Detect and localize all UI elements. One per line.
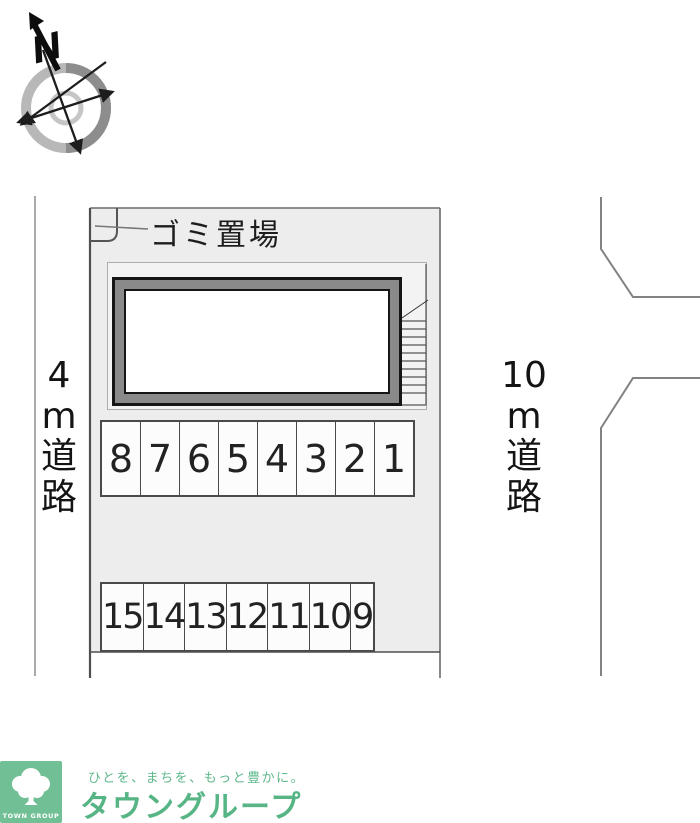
- road-4m-line: 道: [38, 437, 80, 478]
- parking-space-11: 11: [268, 584, 310, 650]
- parking-row-rear: 15 14 13 12 11 10 9: [100, 582, 375, 652]
- building-footprint: [112, 277, 402, 406]
- brand-name: タウングループ: [80, 782, 302, 823]
- road-label-4m: 4 m 道 路: [38, 356, 80, 519]
- road-10m-line: 路: [496, 478, 552, 519]
- parking-space-5: 5: [219, 422, 258, 495]
- garbage-area-label: ゴミ置場: [150, 210, 282, 254]
- road-10m-line: 道: [496, 437, 552, 478]
- parking-space-14: 14: [144, 584, 186, 650]
- parking-space-7: 7: [141, 422, 180, 495]
- road-label-10m: 10 m 道 路: [496, 356, 552, 519]
- parking-space-8: 8: [102, 422, 141, 495]
- parking-space-6: 6: [180, 422, 219, 495]
- road-10m-line: m: [496, 397, 552, 438]
- road-4m-line: m: [38, 397, 80, 438]
- road-edge-bottom-right: [601, 378, 700, 676]
- parking-space-15: 15: [102, 584, 144, 650]
- north-arrow: N: [28, 12, 67, 72]
- parking-space-13: 13: [185, 584, 227, 650]
- parking-space-9: 9: [351, 584, 373, 650]
- parking-space-4: 4: [258, 422, 297, 495]
- road-4m-line: 4: [38, 356, 80, 397]
- town-group-label: TOWN GROUP: [0, 812, 62, 820]
- tree-icon: [0, 761, 62, 811]
- parking-space-3: 3: [297, 422, 336, 495]
- north-label: N: [28, 25, 67, 72]
- parking-space-10: 10: [310, 584, 352, 650]
- road-edge-top-right: [601, 197, 700, 297]
- parking-space-12: 12: [227, 584, 269, 650]
- parking-space-1: 1: [375, 422, 413, 495]
- site-plan-image: 8 7 6 5 4 3 2 1 15 14 13 12 11 10 9 ゴミ置場…: [0, 0, 700, 823]
- town-group-logo: TOWN GROUP: [0, 761, 62, 823]
- compass-rose: N: [19, 12, 112, 152]
- parking-row-front: 8 7 6 5 4 3 2 1: [100, 420, 415, 497]
- road-4m-line: 路: [38, 478, 80, 519]
- road-10m-line: 10: [496, 356, 552, 397]
- parking-space-2: 2: [336, 422, 375, 495]
